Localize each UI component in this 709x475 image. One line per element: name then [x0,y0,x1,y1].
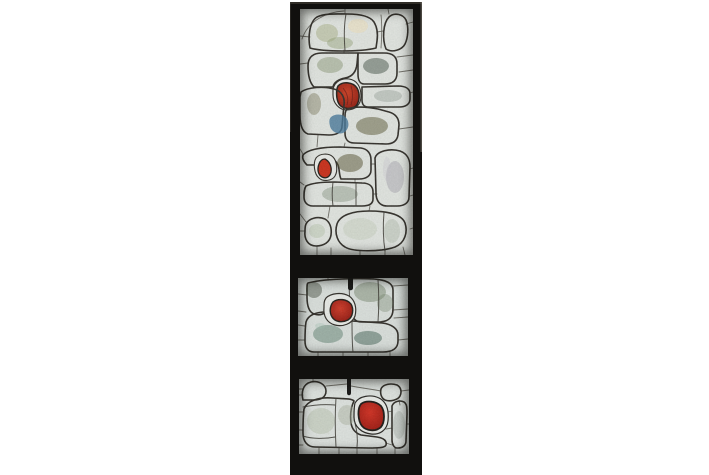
stained-glass-panel-top [300,9,413,255]
frame-top-highlight [290,2,422,4]
frame-right-highlight [421,2,423,152]
glass-grain-dark [298,278,408,356]
glass-grain-dark [299,379,409,454]
stained-glass-panel-bottom [299,379,409,454]
bottom-panel-svg [299,379,409,454]
photo-canvas [0,0,709,475]
glass-grain-dark [300,9,413,255]
frame-left-highlight [290,2,291,132]
middle-panel-svg [298,278,408,356]
top-panel-svg [300,9,413,255]
stained-glass-panel-middle [298,278,408,356]
